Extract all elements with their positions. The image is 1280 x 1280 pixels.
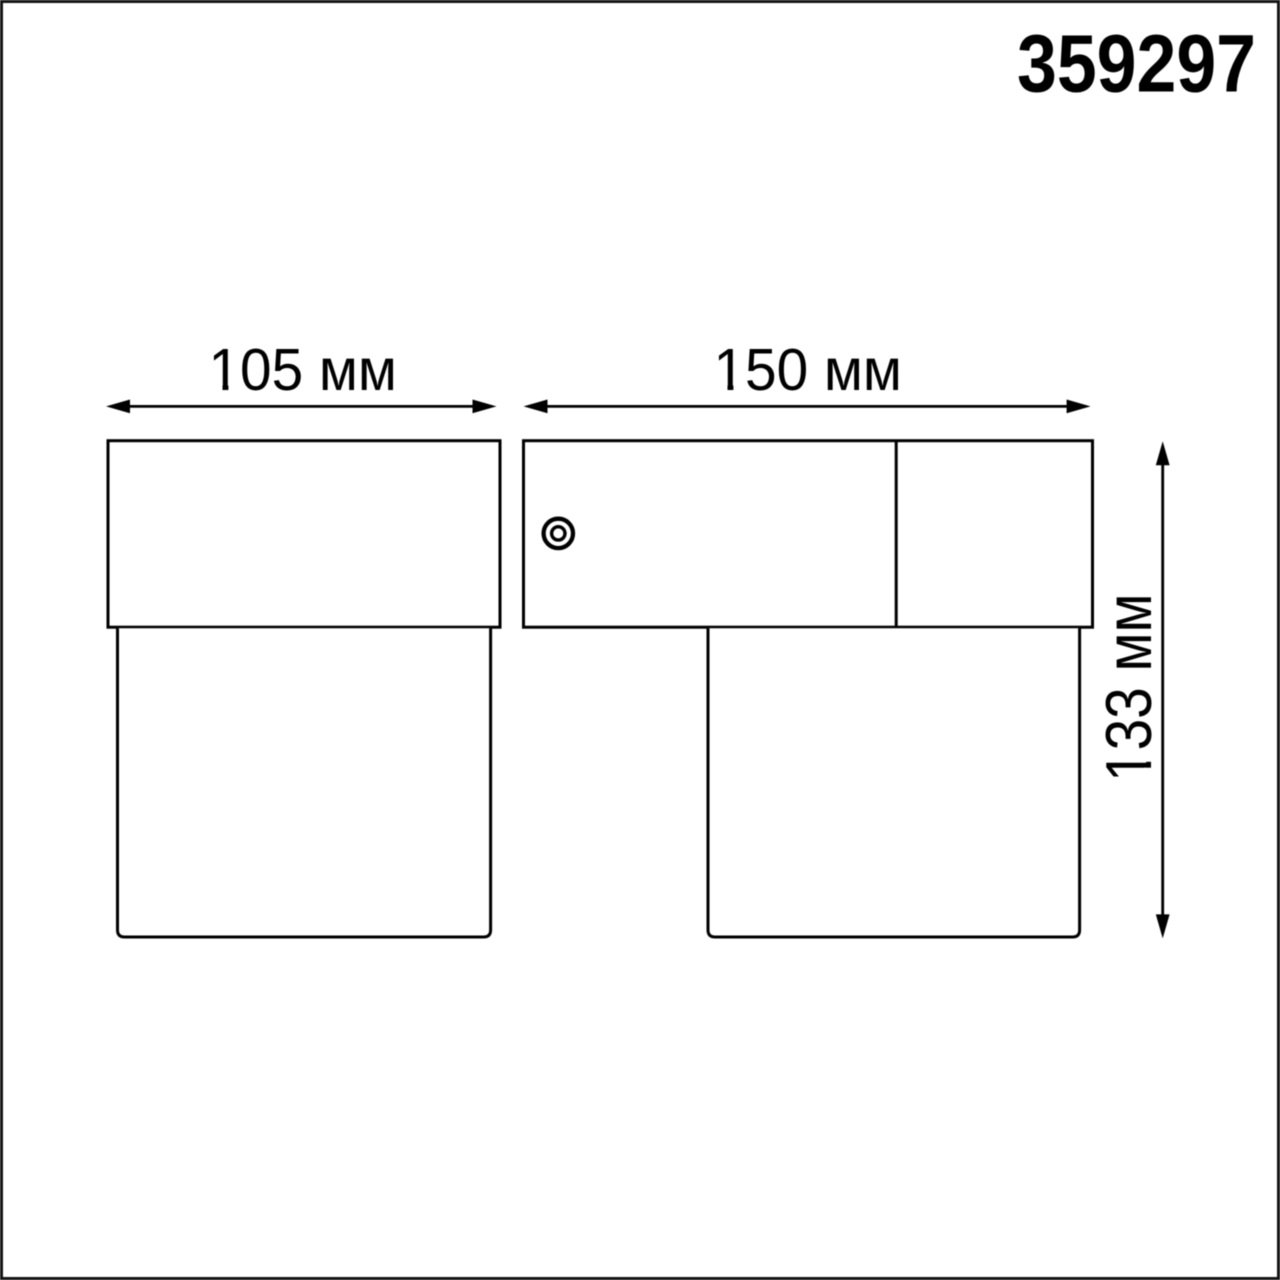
svg-text:150 мм: 150 мм	[713, 337, 902, 403]
svg-text:359297: 359297	[1017, 19, 1256, 110]
svg-text:105 мм: 105 мм	[208, 337, 397, 403]
svg-text:133 мм: 133 мм	[1093, 593, 1165, 782]
